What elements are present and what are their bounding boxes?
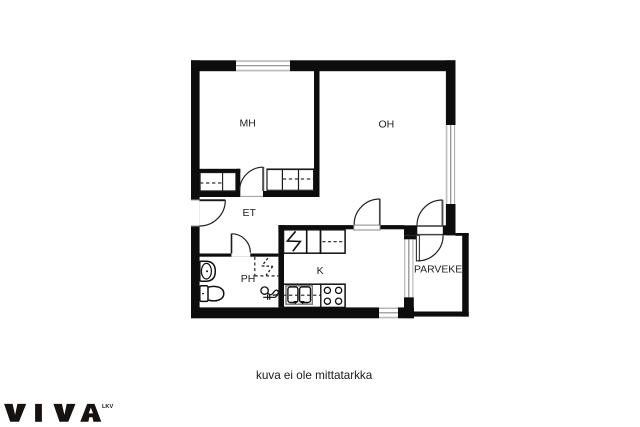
svg-text:LKV: LKV (102, 404, 113, 410)
svg-text:ET: ET (243, 207, 257, 219)
svg-text:kuva ei ole mittatarkka: kuva ei ole mittatarkka (256, 369, 373, 382)
svg-text:MH: MH (240, 118, 256, 130)
svg-text:K: K (317, 265, 324, 277)
svg-text:PH: PH (241, 273, 256, 285)
svg-text:PARVEKE: PARVEKE (414, 264, 462, 275)
svg-text:OH: OH (379, 119, 395, 131)
